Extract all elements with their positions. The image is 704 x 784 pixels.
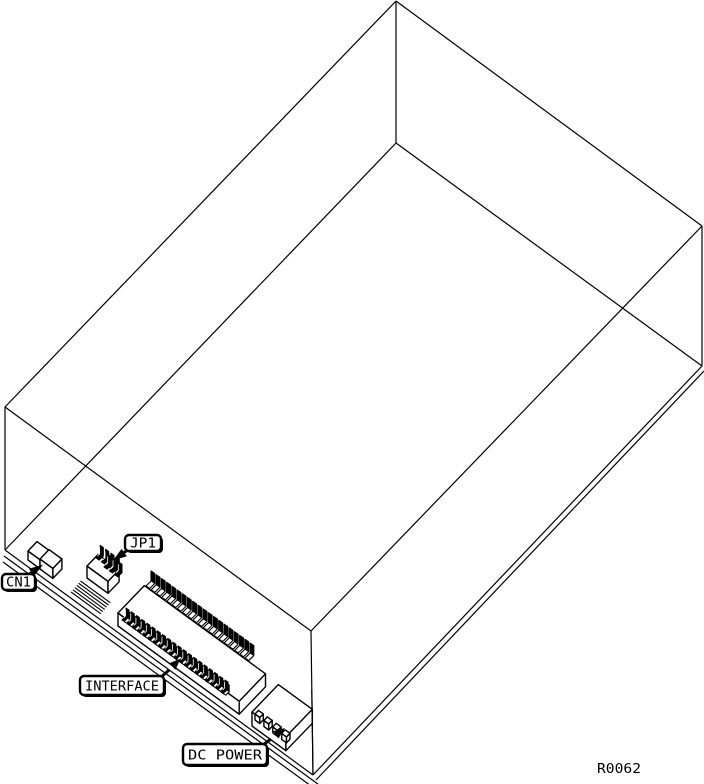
dc-power-label: DC POWER <box>188 749 262 764</box>
box-edge-bottom-back-right <box>396 143 702 366</box>
dc-power-connector <box>252 685 312 751</box>
jp1-label: JP1 <box>130 537 156 552</box>
chassis-wireframe <box>5 1 702 775</box>
callout-interface: INTERFACE <box>80 659 181 697</box>
rim-line-right <box>316 371 704 780</box>
technical-drawing-page: CN1 JP1 INTERFACE DC POWER R0062 <box>0 0 704 784</box>
isometric-drive-drawing: CN1 JP1 INTERFACE DC POWER R0062 <box>0 0 704 784</box>
box-edge-top-right <box>396 1 702 226</box>
front-corner-edge-overlay <box>312 690 313 775</box>
interface-label: INTERFACE <box>85 680 159 695</box>
reference-number: R0062 <box>597 762 641 777</box>
cn1-label: CN1 <box>6 576 31 591</box>
callout-jp1: JP1 <box>113 535 163 561</box>
